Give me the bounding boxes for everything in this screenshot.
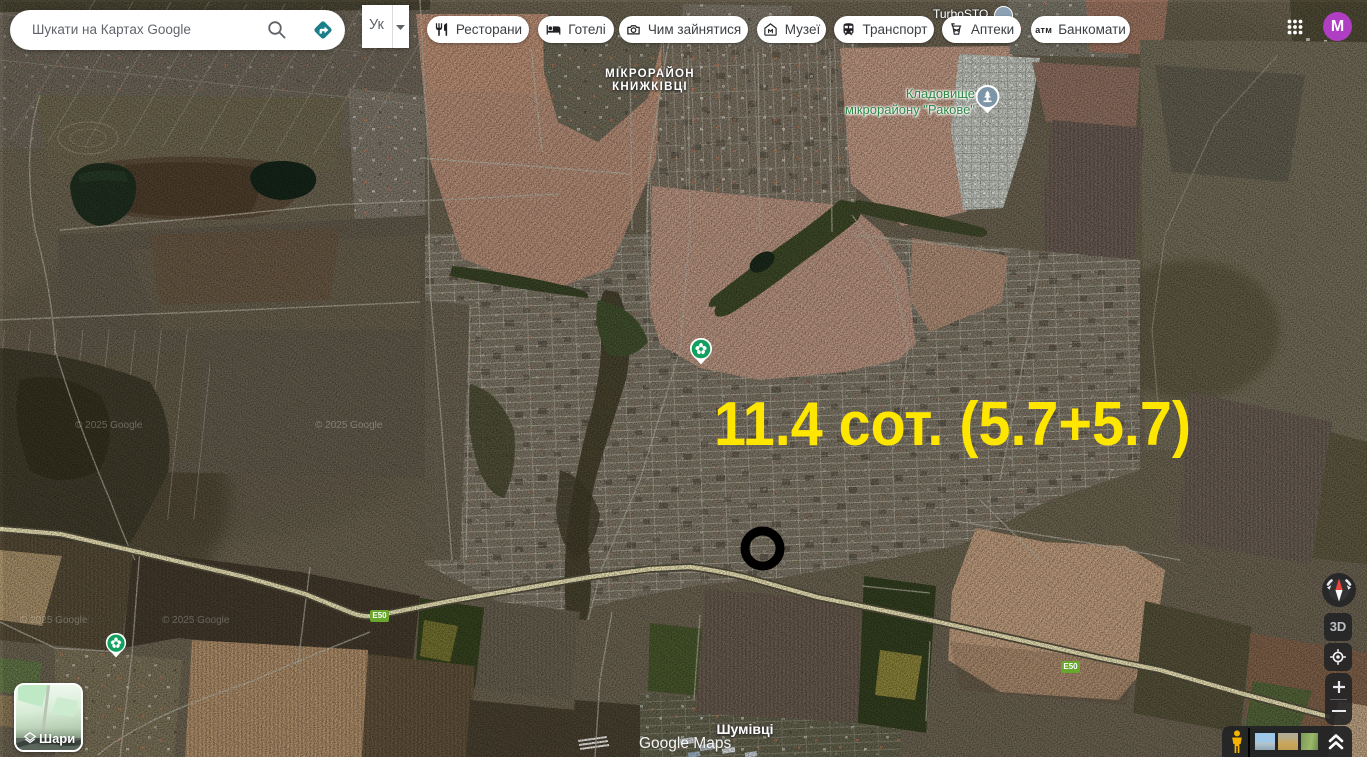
- svg-text:11.4 сот. (5.7+5.7): 11.4 сот. (5.7+5.7): [714, 390, 1191, 459]
